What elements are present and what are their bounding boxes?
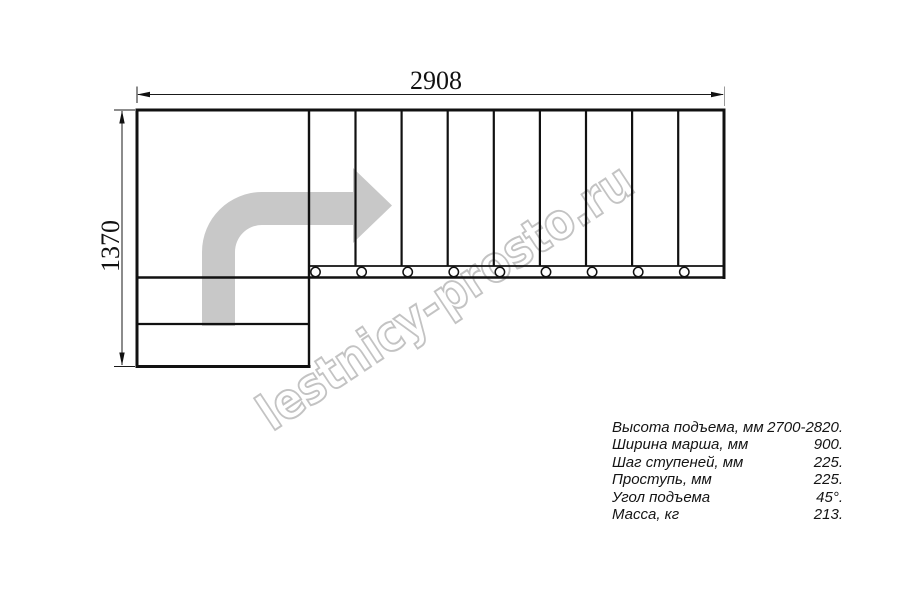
spec-label: Шаг ступеней, мм (612, 454, 743, 471)
spec-value: 45°. (816, 489, 843, 506)
spec-label: Проступь, мм (612, 471, 712, 488)
spec-value: 225. (814, 454, 843, 471)
spec-row: Угол подъема 45°. (612, 489, 843, 506)
spec-label: Угол подъема (612, 489, 710, 506)
spec-row: Проступь, мм 225. (612, 471, 843, 488)
walk-direction-arrow (202, 168, 392, 326)
baluster-circle (495, 267, 504, 276)
horizontal-dimension-label: 2908 (410, 66, 462, 95)
spec-row: Ширина марша, мм 900. (612, 436, 843, 453)
balusters (311, 267, 689, 276)
baluster-circle (311, 267, 320, 276)
baluster-circle (449, 267, 458, 276)
spec-value: 213. (814, 506, 843, 523)
spec-value: 900. (814, 436, 843, 453)
spec-label: Ширина марша, мм (612, 436, 748, 453)
dim-arrow-right (711, 92, 724, 97)
spec-value: 225. (814, 471, 843, 488)
dim-arrow-up (119, 111, 124, 124)
dim-arrow-down (119, 353, 124, 366)
baluster-circle (587, 267, 596, 276)
staircase-drawing-page: lestnicy-prosto.ru (0, 0, 900, 600)
spec-value: 2700-2820. (767, 419, 843, 436)
spec-label: Высота подъема, мм (612, 419, 764, 436)
baluster-circle (634, 267, 643, 276)
vertical-dimension-label: 1370 (96, 220, 125, 272)
baluster-circle (357, 267, 366, 276)
spec-row: Масса, кг 213. (612, 506, 843, 523)
spec-row: Высота подъема, мм 2700-2820. (612, 419, 843, 436)
spec-table: Высота подъема, мм 2700-2820. Ширина мар… (612, 419, 843, 523)
baluster-circle (403, 267, 412, 276)
spec-label: Масса, кг (612, 506, 679, 523)
baluster-circle (680, 267, 689, 276)
spec-row: Шаг ступеней, мм 225. (612, 454, 843, 471)
baluster-circle (541, 267, 550, 276)
dim-arrow-left (137, 92, 150, 97)
